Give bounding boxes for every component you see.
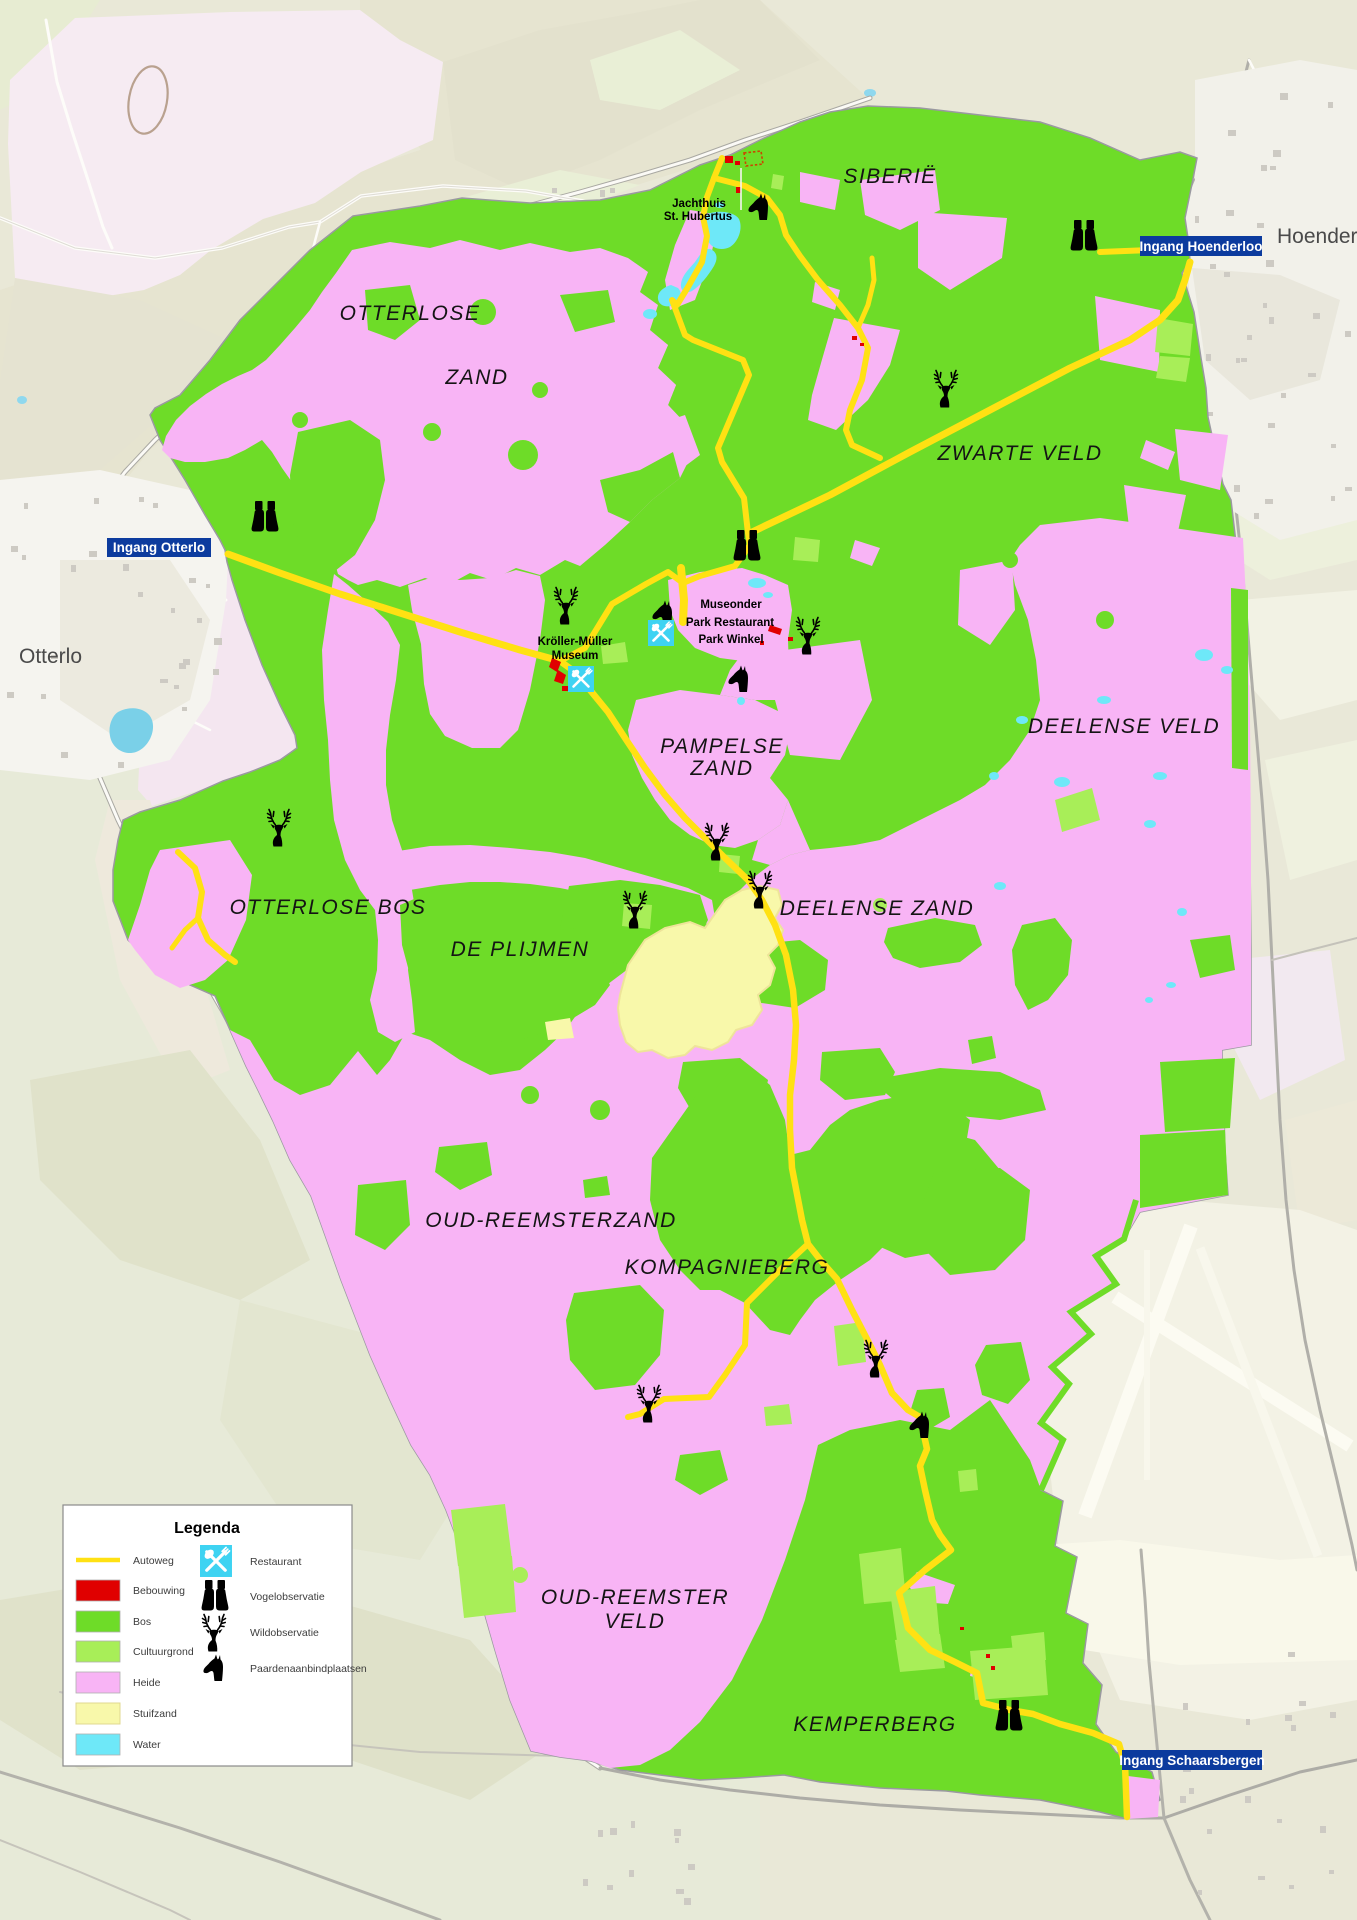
svg-text:DEELENSE VELD: DEELENSE VELD (1028, 715, 1220, 738)
svg-text:Paardenaanbindplaatsen: Paardenaanbindplaatsen (250, 1663, 367, 1675)
svg-text:OTTERLOSE BOS: OTTERLOSE BOS (230, 896, 427, 919)
svg-text:Park Restaurant: Park Restaurant (686, 617, 774, 629)
svg-text:Wildobservatie: Wildobservatie (250, 1627, 319, 1639)
svg-text:Ingang Hoenderloo: Ingang Hoenderloo (1140, 239, 1263, 254)
svg-text:Ingang Schaarsbergen: Ingang Schaarsbergen (1119, 1753, 1265, 1768)
svg-text:Bebouwing: Bebouwing (133, 1585, 185, 1597)
svg-text:Cultuurgrond: Cultuurgrond (133, 1646, 194, 1658)
svg-text:DE PLIJMEN: DE PLIJMEN (451, 938, 590, 961)
svg-text:Ingang Otterlo: Ingang Otterlo (113, 540, 205, 555)
svg-text:OUD-REEMSTER: OUD-REEMSTER (541, 1586, 729, 1609)
svg-text:Museonder: Museonder (700, 599, 762, 611)
svg-text:Kröller-Müller: Kröller-Müller (538, 636, 613, 648)
svg-text:VELD: VELD (605, 1610, 666, 1633)
svg-text:St. Hubertus: St. Hubertus (664, 211, 732, 223)
svg-text:Otterlo: Otterlo (19, 645, 82, 668)
svg-text:Hoenderloo: Hoenderloo (1277, 225, 1357, 248)
svg-text:Legenda: Legenda (174, 1520, 240, 1537)
svg-text:SIBERIË: SIBERIË (843, 165, 936, 188)
svg-text:OTTERLOSE: OTTERLOSE (340, 302, 481, 325)
svg-text:Heide: Heide (133, 1677, 161, 1689)
svg-text:OUD-REEMSTERZAND: OUD-REEMSTERZAND (425, 1209, 677, 1232)
svg-text:KOMPAGNIEBERG: KOMPAGNIEBERG (625, 1256, 830, 1279)
svg-text:KEMPERBERG: KEMPERBERG (793, 1713, 956, 1736)
svg-text:Water: Water (133, 1739, 161, 1751)
svg-text:Stuifzand: Stuifzand (133, 1708, 177, 1720)
svg-text:DEELENSE ZAND: DEELENSE ZAND (780, 897, 975, 920)
svg-text:Museum: Museum (552, 650, 599, 662)
svg-text:Park Winkel: Park Winkel (698, 634, 763, 646)
svg-text:ZAND: ZAND (689, 757, 753, 780)
svg-text:Vogelobservatie: Vogelobservatie (250, 1591, 325, 1603)
svg-text:Bos: Bos (133, 1616, 151, 1628)
svg-text:Restaurant: Restaurant (250, 1556, 301, 1568)
svg-text:PAMPELSE: PAMPELSE (660, 735, 784, 758)
svg-text:Jachthuis: Jachthuis (672, 198, 726, 210)
svg-text:ZWARTE VELD: ZWARTE VELD (936, 442, 1102, 465)
svg-text:Autoweg: Autoweg (133, 1555, 174, 1567)
svg-text:ZAND: ZAND (444, 366, 508, 389)
